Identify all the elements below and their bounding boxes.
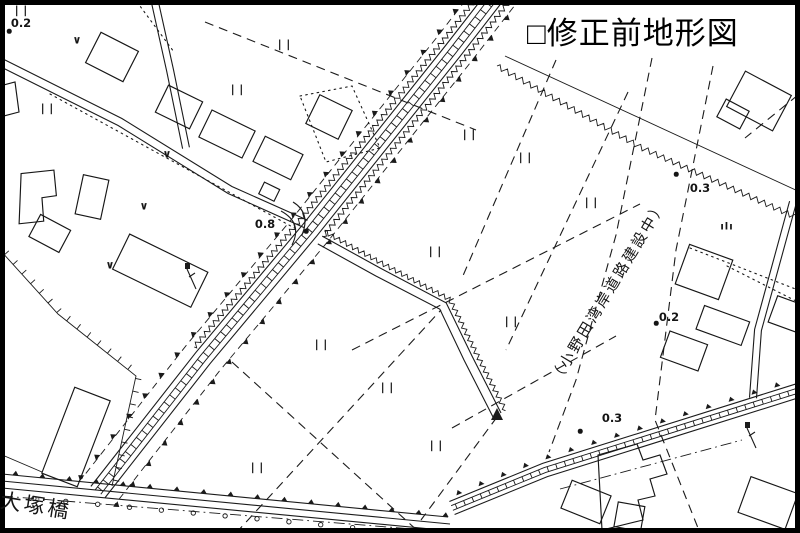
elevation-dot	[578, 429, 583, 434]
rice-field-symbol: ||	[461, 128, 478, 141]
rice-field-symbol: ||	[39, 102, 56, 115]
dry-field-symbol: ∨	[163, 148, 172, 161]
topographic-map-sheet: □修正前地形図 大塚橋 （小野田湾岸道路建設中） 0.20.80.30.20.3…	[0, 0, 800, 533]
elevation-dot	[674, 172, 679, 177]
rice-field-symbol: ||	[13, 4, 30, 17]
elevation-dot	[304, 229, 309, 234]
rice-field-symbol: ||	[503, 315, 520, 328]
elevation-label: 0.3	[690, 181, 710, 195]
construction-road-label: （小野田湾岸道路建設中）	[545, 196, 671, 387]
rice-field-symbol: ||	[229, 83, 246, 96]
bridge-label: 大塚橋	[0, 485, 74, 526]
elevation-dot	[7, 29, 12, 34]
elevation-label: 0.2	[11, 16, 31, 30]
map-labels-layer: □修正前地形図 大塚橋 （小野田湾岸道路建設中） 0.20.80.30.20.3…	[0, 0, 800, 533]
elevation-dot	[654, 321, 659, 326]
rice-field-symbol: ||	[583, 196, 600, 209]
dry-field-symbol: ∨	[140, 200, 149, 213]
rice-field-symbol: ||	[427, 245, 444, 258]
elevation-label: 0.3	[602, 411, 622, 425]
grass-symbol: ılı	[720, 222, 733, 233]
dry-field-symbol: ∨	[73, 34, 82, 47]
rice-field-symbol: ||	[517, 151, 534, 164]
rice-field-symbol: ||	[379, 381, 396, 394]
rice-field-symbol: ||	[428, 439, 445, 452]
rice-field-symbol: ||	[313, 338, 330, 351]
elevation-label: 0.2	[659, 310, 679, 324]
rice-field-symbol: ||	[276, 38, 293, 51]
map-title: □修正前地形図	[527, 8, 739, 53]
elevation-label: 0.8	[255, 217, 275, 231]
rice-field-symbol: ||	[249, 461, 266, 474]
dry-field-symbol: ∨	[106, 259, 115, 272]
